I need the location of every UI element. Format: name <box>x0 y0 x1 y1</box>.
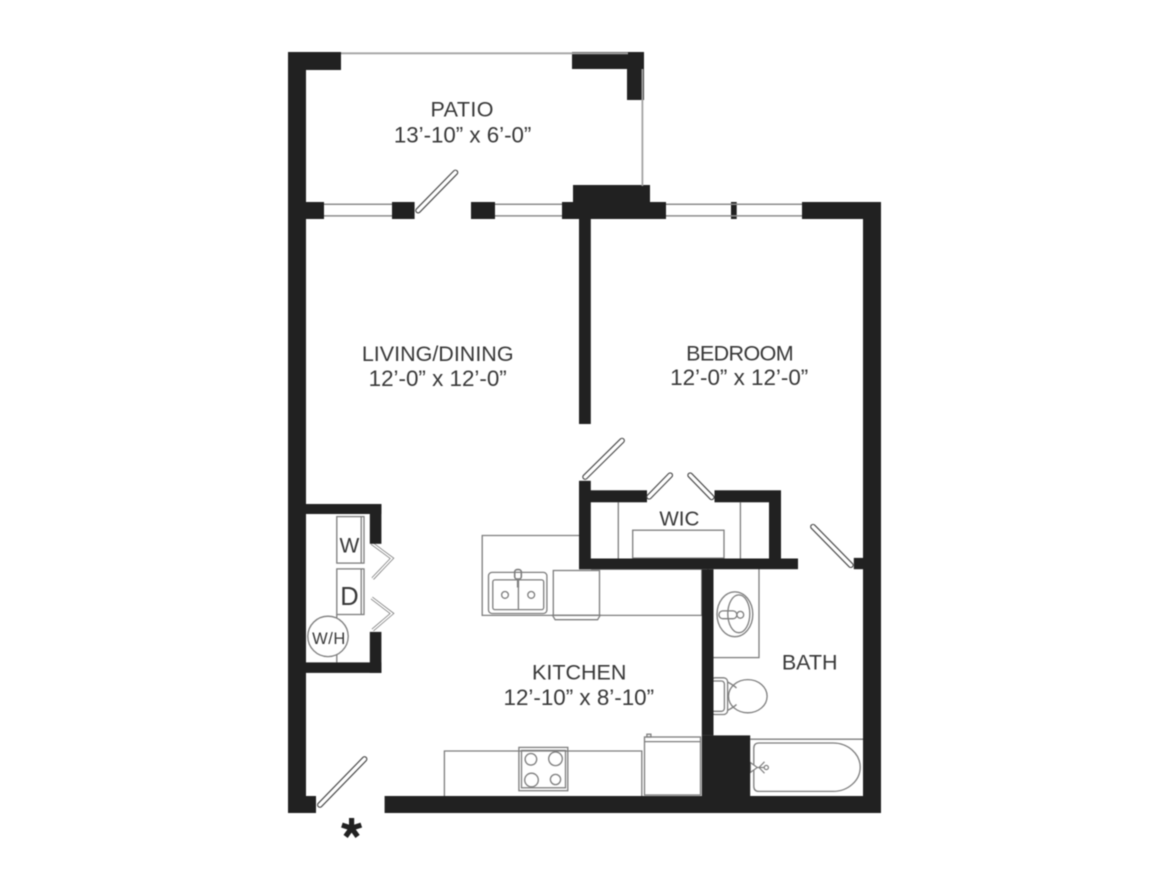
svg-text:BEDROOM: BEDROOM <box>686 341 793 365</box>
svg-text:W/H: W/H <box>312 630 346 648</box>
svg-text:BATH: BATH <box>782 651 838 675</box>
svg-text:D: D <box>340 583 358 611</box>
svg-text:12’-10” x 8’-10”: 12’-10” x 8’-10” <box>504 685 655 710</box>
svg-text:W: W <box>339 534 359 557</box>
svg-text:13’-10” x 6’-0”: 13’-10” x 6’-0” <box>394 123 532 148</box>
svg-text:KITCHEN: KITCHEN <box>532 661 626 685</box>
svg-text:PATIO: PATIO <box>431 98 494 122</box>
svg-text:WIC: WIC <box>659 508 699 531</box>
svg-text:12’-0” x 12’-0”: 12’-0” x 12’-0” <box>670 365 808 390</box>
svg-text:12’-0” x 12’-0”: 12’-0” x 12’-0” <box>369 366 507 391</box>
svg-text:LIVING/DINING: LIVING/DINING <box>362 342 514 366</box>
